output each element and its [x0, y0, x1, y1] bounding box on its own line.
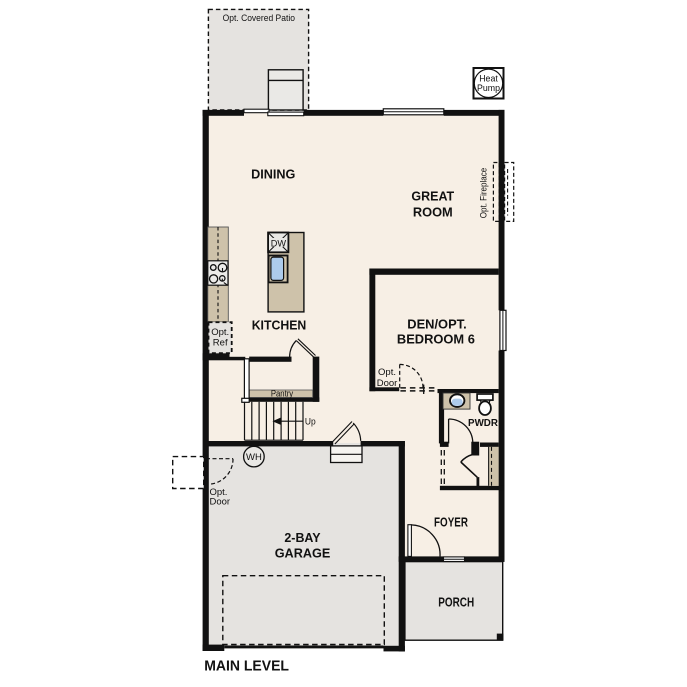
svg-text:PWDR: PWDR: [468, 417, 498, 429]
svg-text:PORCH: PORCH: [438, 594, 474, 609]
svg-text:MAIN LEVEL: MAIN LEVEL: [204, 659, 289, 675]
svg-text:Opt.: Opt.: [211, 327, 229, 338]
svg-text:Opt. Covered Patio: Opt. Covered Patio: [223, 13, 295, 24]
svg-text:Up: Up: [305, 416, 316, 427]
svg-text:DINING: DINING: [251, 167, 295, 182]
svg-text:Door: Door: [377, 378, 398, 389]
svg-text:BEDROOM 6: BEDROOM 6: [397, 331, 475, 346]
svg-text:GREAT: GREAT: [411, 188, 454, 203]
svg-text:Opt. Fireplace: Opt. Fireplace: [479, 168, 490, 219]
svg-text:WH: WH: [246, 452, 262, 463]
svg-text:KITCHEN: KITCHEN: [252, 318, 307, 333]
svg-text:GARAGE: GARAGE: [275, 546, 331, 561]
svg-text:Heat: Heat: [479, 74, 498, 84]
svg-text:2-BAY: 2-BAY: [284, 530, 321, 545]
svg-text:ROOM: ROOM: [413, 205, 453, 220]
svg-text:Opt.: Opt.: [378, 367, 396, 378]
svg-text:FOYER: FOYER: [434, 514, 468, 529]
svg-text:DW: DW: [271, 239, 286, 250]
svg-text:Pantry: Pantry: [271, 388, 293, 399]
svg-text:Door: Door: [210, 496, 231, 507]
svg-text:Ref: Ref: [213, 338, 228, 349]
svg-text:DEN/OPT.: DEN/OPT.: [407, 316, 466, 331]
svg-text:Pump: Pump: [477, 83, 500, 93]
